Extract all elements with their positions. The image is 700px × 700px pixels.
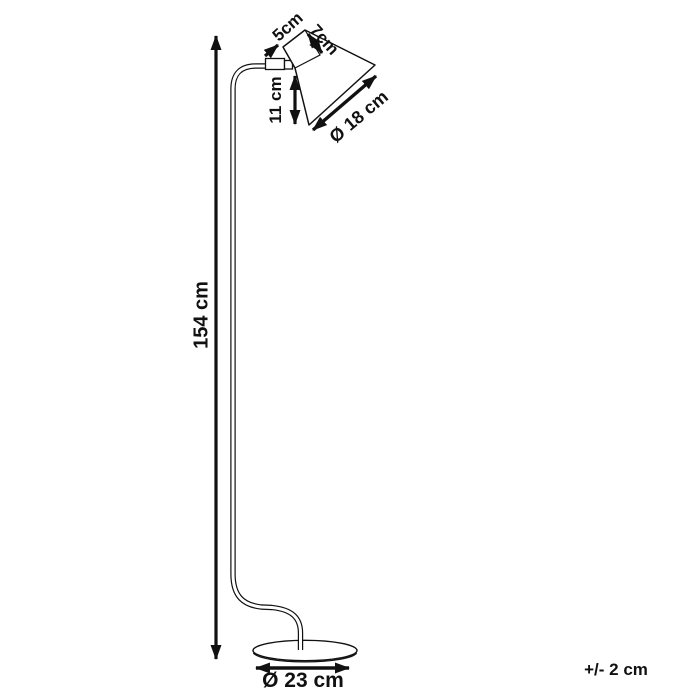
lamp-line-drawing bbox=[0, 0, 700, 700]
shade-top-width-arrow bbox=[265, 45, 278, 56]
lamp-pole bbox=[233, 66, 301, 650]
lamp-base bbox=[253, 640, 357, 662]
label-shade-height: 11 cm bbox=[266, 76, 286, 123]
label-tolerance: +/- 2 cm bbox=[584, 660, 648, 680]
lamp-socket bbox=[266, 59, 293, 70]
label-base-diameter: Ø 23 cm bbox=[262, 669, 344, 693]
label-lamp-height: 154 cm bbox=[191, 281, 214, 349]
product-dimension-diagram: 5cm 7cm 11 cm Ø 18 cm 154 cm Ø 23 cm +/-… bbox=[0, 0, 700, 700]
